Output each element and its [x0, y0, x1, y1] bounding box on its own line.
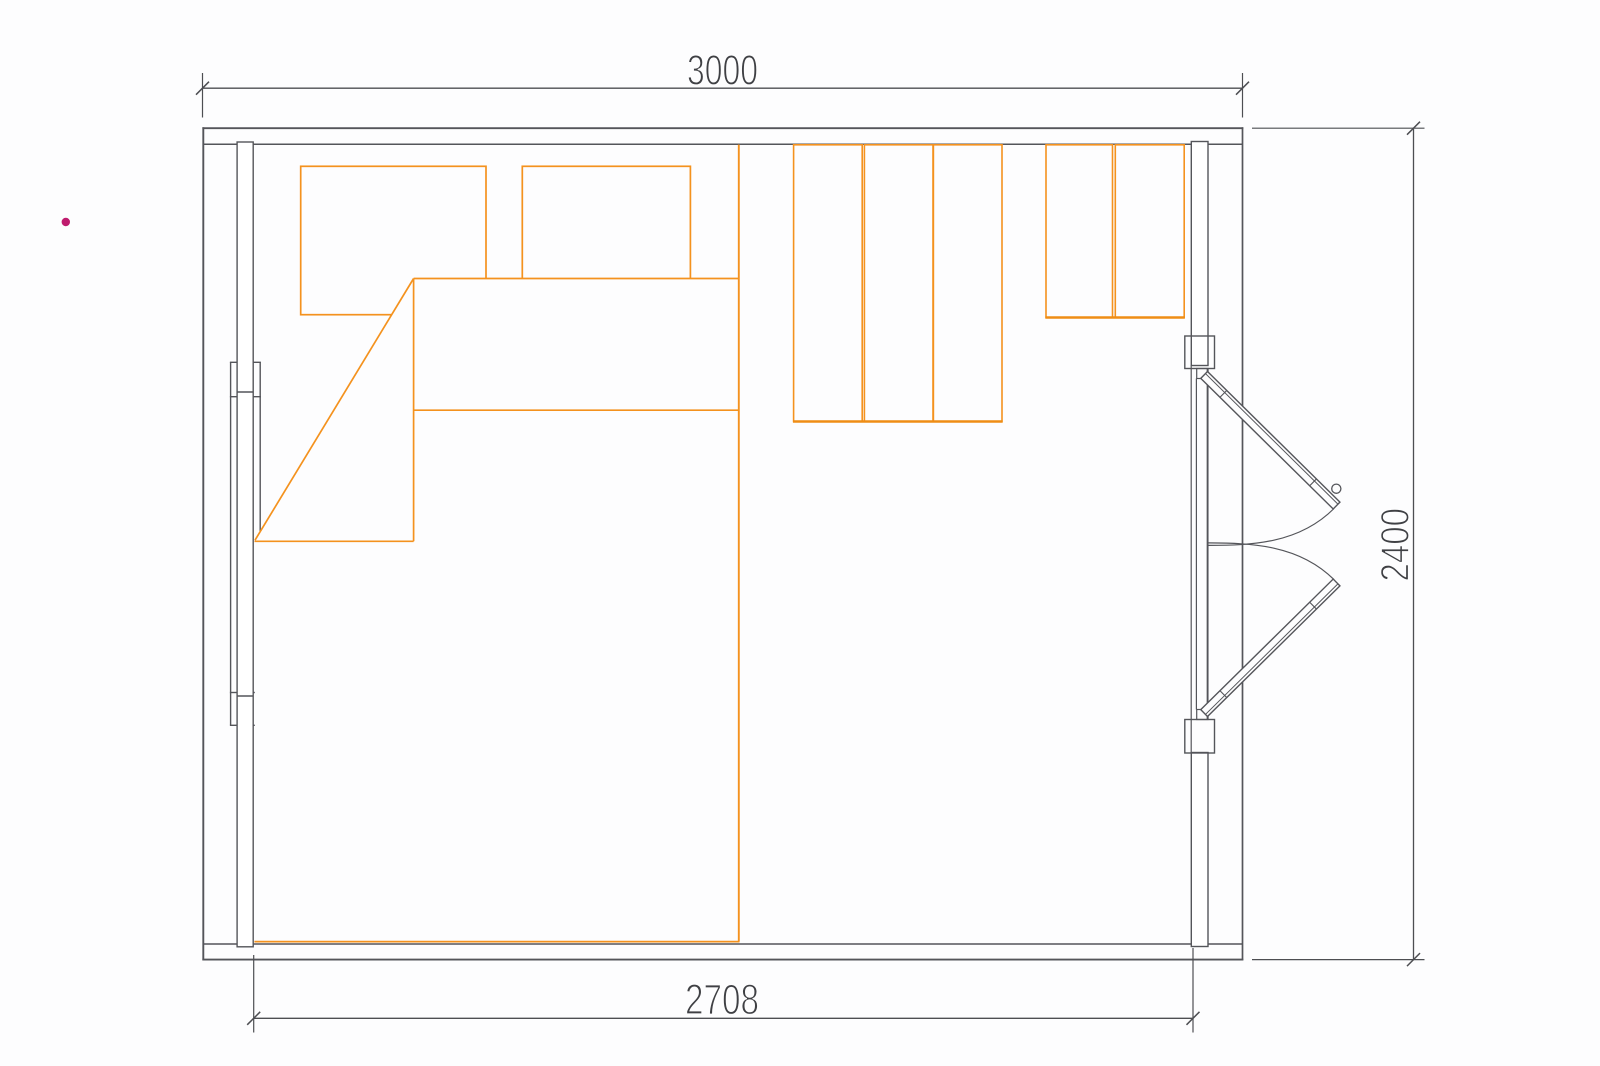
svg-text:2400: 2400 [1374, 508, 1418, 582]
svg-text:3000: 3000 [687, 47, 758, 94]
svg-text:2708: 2708 [685, 977, 759, 1024]
